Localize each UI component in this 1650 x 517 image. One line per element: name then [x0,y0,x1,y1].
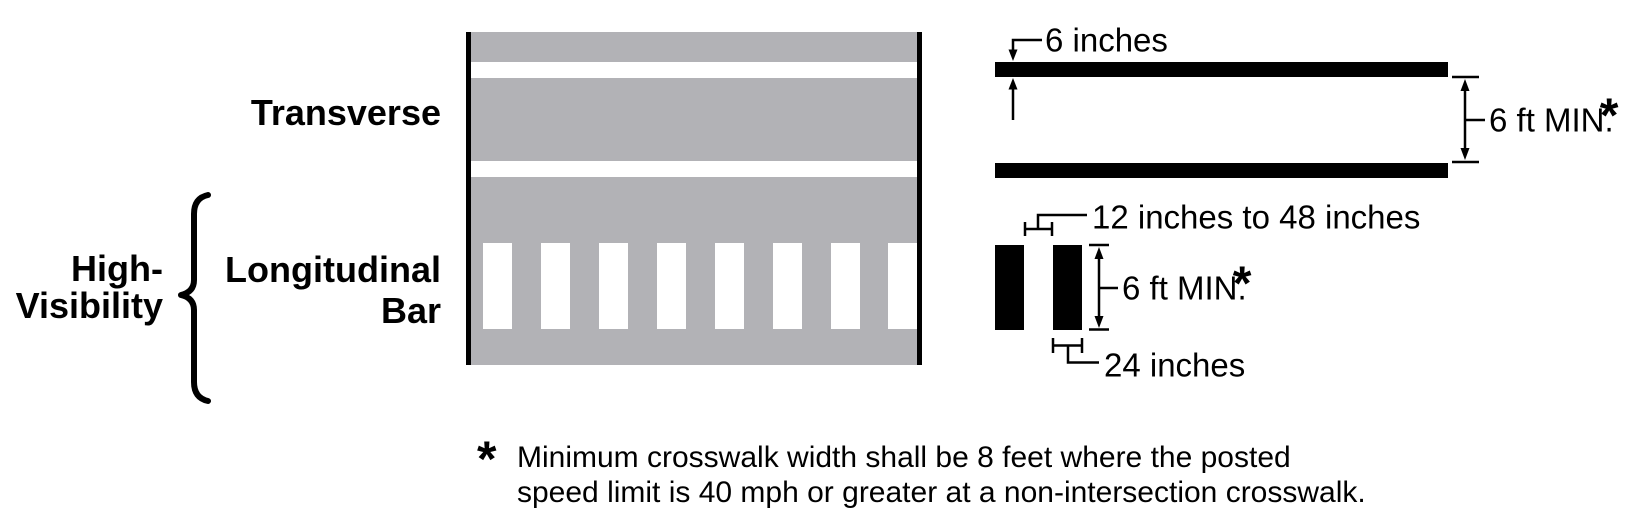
footnote-asterisk-marker: * [477,434,496,484]
high-visibility-brace [181,195,208,401]
bar-pitch-dimension [1053,338,1099,363]
longitudinal-bar-marking [541,243,570,329]
bar-gap-dimension [1025,215,1087,236]
high-visibility-label-line1: High- [16,250,163,287]
line-width-leader [1009,40,1043,120]
high-visibility-label: High- Visibility [16,250,163,324]
longitudinal-bar-marking [831,243,860,329]
footnote: Minimum crosswalk width shall be 8 feet … [517,440,1366,510]
longitudinal-bar-schematic-left [995,245,1024,330]
bar-length-annotation: 6 ft MIN.* [1122,272,1251,305]
transverse-line-schematic-top [995,62,1448,77]
transverse-spacing-annotation: 6 ft MIN.* [1489,104,1618,137]
longitudinal-bar-label-line1: Longitudinal [225,249,441,290]
bar-length-dimension [1089,245,1118,330]
longitudinal-bar-marking [773,243,802,329]
longitudinal-bar-marking [483,243,512,329]
longitudinal-bar-label: Longitudinal Bar [225,249,441,331]
line-width-annotation: 6 inches [1045,24,1168,57]
transverse-spacing-dimension [1452,77,1485,162]
longitudinal-bar-marking [715,243,744,329]
footnote-line1: Minimum crosswalk width shall be 8 feet … [517,440,1366,475]
longitudinal-bar-marking [657,243,686,329]
transverse-label: Transverse [251,95,441,131]
transverse-line-schematic-bottom [995,163,1448,178]
asterisk-marker: * [1233,258,1252,311]
bar-pitch-annotation: 24 inches [1104,349,1245,382]
high-visibility-label-line2: Visibility [16,287,163,324]
longitudinal-bar-marking [888,243,917,329]
longitudinal-bar-marking [599,243,628,329]
transverse-line-bottom-marking [471,161,917,177]
transverse-spacing-text: 6 ft MIN. [1489,102,1614,139]
road-pavement [466,32,922,365]
longitudinal-bar-schematic-right [1053,245,1082,330]
longitudinal-bar-label-line2: Bar [225,290,441,331]
crosswalk-markings-figure: Transverse High- Visibility Longitudinal… [0,0,1650,517]
bar-length-text: 6 ft MIN. [1122,270,1247,307]
bar-gap-annotation: 12 inches to 48 inches [1092,201,1420,234]
asterisk-marker: * [1600,90,1619,143]
footnote-line2: speed limit is 40 mph or greater at a no… [517,475,1366,510]
transverse-line-top-marking [471,62,917,78]
